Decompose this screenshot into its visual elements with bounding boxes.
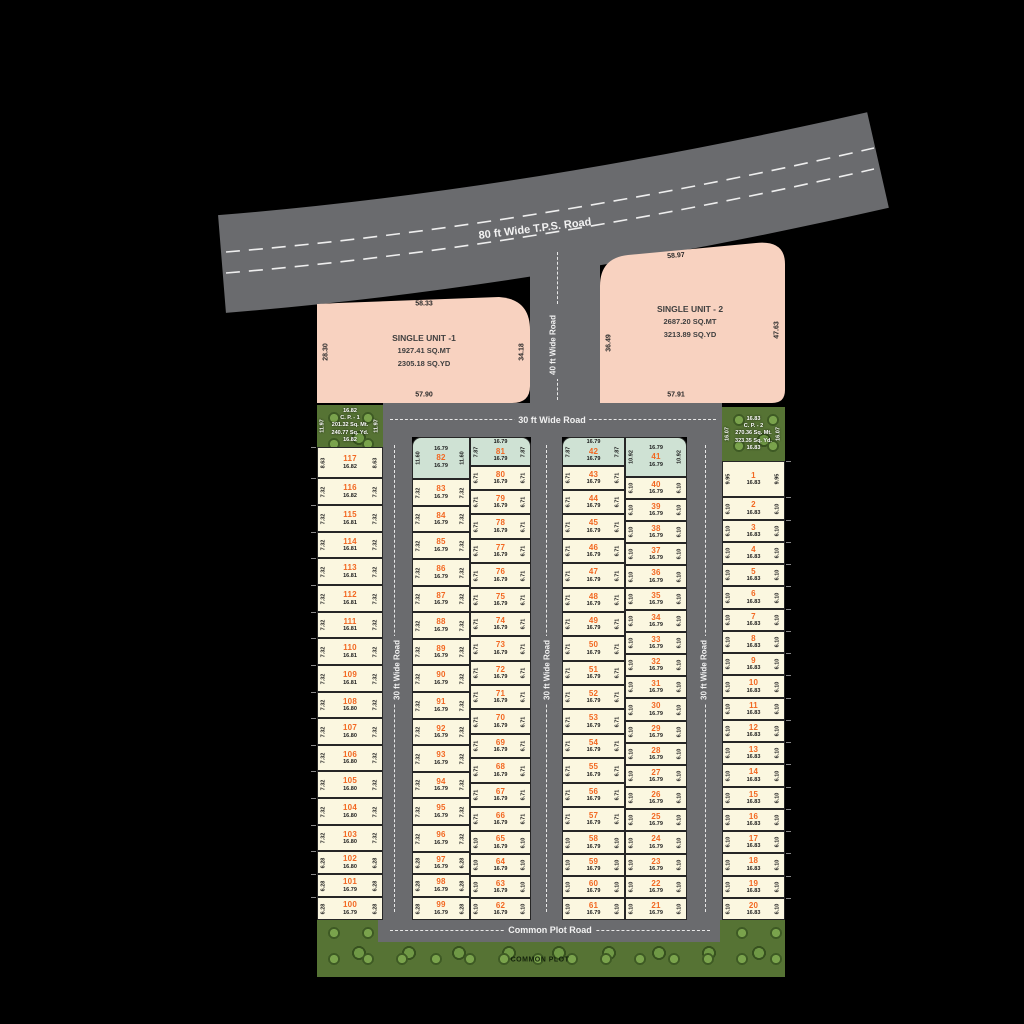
plot-34-number: 34 — [651, 614, 660, 622]
plot-88: 8816.797.327.32 — [412, 612, 470, 639]
plot-21-side-dim-left: 6.10 — [629, 904, 635, 915]
dimension-tick — [786, 698, 791, 699]
plot-77-side-dim-left: 6.71 — [474, 546, 480, 557]
plot-116-side-dim-right: 7.32 — [373, 486, 379, 497]
plot-54-side-dim-left: 6.71 — [566, 741, 572, 752]
plot-76-width-dim: 16.79 — [494, 578, 508, 584]
plot-26-number: 26 — [651, 791, 660, 799]
plot-24-side-dim-right: 6.10 — [677, 837, 683, 848]
plot-73-side-dim-right: 6.71 — [521, 643, 527, 654]
plot-56-side-dim-right: 6.71 — [615, 790, 621, 801]
plot-100: 10016.796.286.28 — [317, 897, 383, 920]
common-plot-road-label: Common Plot Road — [504, 924, 596, 936]
plot-102-side-dim-left: 6.28 — [321, 857, 327, 868]
plot-65-side-dim-left: 6.10 — [474, 837, 480, 848]
dimension-tick — [786, 461, 791, 462]
plot-67-number: 67 — [496, 788, 505, 796]
cp2-area-mt: 270.36 Sq. Mt. — [735, 430, 771, 437]
dimension-tick — [311, 612, 316, 613]
plot-46: 4616.796.716.71 — [562, 539, 625, 563]
plot-64-number: 64 — [496, 858, 505, 866]
plot-110-width-dim: 16.81 — [343, 654, 357, 660]
plot-114-width-dim: 16.81 — [343, 547, 357, 553]
plot-61-side-dim-right: 6.10 — [615, 904, 621, 915]
plot-1-side-dim-right: 9.95 — [775, 474, 781, 485]
plot-109-number: 109 — [343, 671, 357, 679]
plot-53-side-dim-left: 6.71 — [566, 716, 572, 727]
plot-109-side-dim-right: 7.32 — [373, 673, 379, 684]
plot-44-width-dim: 16.79 — [587, 504, 601, 510]
plot-56-number: 56 — [589, 788, 598, 796]
plot-108-number: 108 — [343, 698, 357, 706]
dimension-tick — [786, 631, 791, 632]
plot-13-number: 13 — [749, 746, 758, 754]
plot-99-side-dim-left: 6.28 — [416, 903, 422, 914]
plot-95-number: 95 — [436, 804, 445, 812]
plot-52-width-dim: 16.79 — [587, 699, 601, 705]
plot-52-number: 52 — [589, 690, 598, 698]
plot-47: 4716.796.716.71 — [562, 563, 625, 588]
plot-76-number: 76 — [496, 568, 505, 576]
single-unit-2-dim-right: 47.63 — [774, 321, 781, 339]
plot-61: 6116.796.106.10 — [562, 898, 625, 920]
plot-97-side-dim-right: 6.28 — [460, 858, 466, 869]
plot-65: 6516.796.106.10 — [470, 831, 531, 854]
plot-9: 916.836.106.10 — [722, 653, 785, 675]
plot-10: 1016.836.106.10 — [722, 675, 785, 698]
plot-79-number: 79 — [496, 495, 505, 503]
plot-7-side-dim-right: 6.10 — [775, 615, 781, 626]
plot-61-width-dim: 16.79 — [587, 911, 601, 917]
plot-53-width-dim: 16.79 — [587, 724, 601, 730]
plot-113-number: 113 — [343, 564, 357, 572]
plot-81: 16.798116.797.877.87 — [470, 437, 531, 466]
plot-74-side-dim-left: 6.71 — [474, 619, 480, 630]
plot-26-side-dim-left: 6.10 — [629, 793, 635, 804]
plot-75-side-dim-left: 6.71 — [474, 595, 480, 606]
plot-111-side-dim-left: 7.32 — [321, 620, 327, 631]
plot-78-number: 78 — [496, 519, 505, 527]
plot-100-side-dim-left: 6.28 — [321, 903, 327, 914]
plot-45-number: 45 — [589, 519, 598, 527]
plot-105-side-dim-left: 7.32 — [321, 779, 327, 790]
plot-5-side-dim-right: 6.10 — [775, 570, 781, 581]
plot-113-side-dim-right: 7.32 — [373, 566, 379, 577]
plot-70: 7016.796.716.71 — [470, 709, 531, 734]
plot-87-width-dim: 16.79 — [434, 601, 448, 607]
plot-4-number: 4 — [751, 546, 756, 554]
plot-72-side-dim-left: 6.71 — [474, 668, 480, 679]
plot-21: 2116.796.106.10 — [625, 898, 687, 920]
plot-31-number: 31 — [651, 680, 660, 688]
plot-60-width-dim: 16.79 — [587, 889, 601, 895]
plot-72-width-dim: 16.79 — [494, 675, 508, 681]
dimension-tick — [311, 692, 316, 693]
plot-36-number: 36 — [651, 569, 660, 577]
plot-93-side-dim-left: 7.32 — [416, 753, 422, 764]
plot-39: 3916.796.106.10 — [625, 499, 687, 521]
plot-73-side-dim-left: 6.71 — [474, 643, 480, 654]
plot-53: 5316.796.716.71 — [562, 709, 625, 734]
plot-82: 16.798216.7911.6011.60 — [412, 437, 470, 479]
plot-11: 1116.836.106.10 — [722, 698, 785, 720]
plot-69-side-dim-left: 6.71 — [474, 741, 480, 752]
plot-91-side-dim-right: 7.32 — [460, 700, 466, 711]
plot-19-number: 19 — [749, 880, 758, 888]
plot-90-number: 90 — [436, 671, 445, 679]
plot-17: 1716.836.106.10 — [722, 831, 785, 853]
plot-114-number: 114 — [343, 538, 357, 546]
plot-30-side-dim-left: 6.10 — [629, 704, 635, 715]
plot-111-width-dim: 16.81 — [343, 627, 357, 633]
plot-42-number: 42 — [589, 448, 598, 456]
dimension-tick — [786, 809, 791, 810]
plot-68-number: 68 — [496, 763, 505, 771]
plot-55-side-dim-right: 6.71 — [615, 765, 621, 776]
plot-41-side-dim-left: 10.92 — [629, 450, 635, 464]
plot-76-side-dim-left: 6.71 — [474, 570, 480, 581]
plot-17-side-dim-left: 6.10 — [726, 837, 732, 848]
plot-55-number: 55 — [589, 763, 598, 771]
plot-46-side-dim-right: 6.71 — [615, 546, 621, 557]
plot-115: 11516.817.327.32 — [317, 505, 383, 532]
plot-81-top-dim: 16.79 — [494, 440, 508, 446]
plot-116-side-dim-left: 7.32 — [321, 486, 327, 497]
plot-42-side-dim-right: 7.87 — [615, 446, 621, 457]
plot-117-side-dim-right: 8.63 — [373, 457, 379, 468]
plot-16-width-dim: 16.83 — [747, 822, 761, 828]
plot-42-side-dim-left: 7.87 — [566, 446, 572, 457]
plot-92-width-dim: 16.79 — [434, 734, 448, 740]
plot-18-width-dim: 16.83 — [747, 867, 761, 873]
plot-15-side-dim-left: 6.10 — [726, 793, 732, 804]
plot-107: 10716.807.327.32 — [317, 718, 383, 745]
plot-67-side-dim-left: 6.71 — [474, 790, 480, 801]
plot-42-top-dim: 16.79 — [587, 440, 601, 446]
plot-107-side-dim-right: 7.32 — [373, 726, 379, 737]
plot-43-width-dim: 16.79 — [587, 480, 601, 486]
plot-68-side-dim-left: 6.71 — [474, 765, 480, 776]
plot-96: 9616.797.327.32 — [412, 825, 470, 852]
plot-58-side-dim-left: 6.10 — [566, 837, 572, 848]
plot-61-side-dim-left: 6.10 — [566, 904, 572, 915]
plot-28-number: 28 — [651, 747, 660, 755]
plot-103-side-dim-right: 7.32 — [373, 833, 379, 844]
plot-50-number: 50 — [589, 641, 598, 649]
plot-10-side-dim-right: 6.10 — [775, 681, 781, 692]
plot-80-side-dim-right: 6.71 — [521, 473, 527, 484]
plot-23-side-dim-left: 6.10 — [629, 860, 635, 871]
plot-45-side-dim-right: 6.71 — [615, 521, 621, 532]
plot-29-side-dim-left: 6.10 — [629, 727, 635, 738]
plot-63: 6316.796.106.10 — [470, 876, 531, 898]
plot-43-number: 43 — [589, 471, 598, 479]
plot-49-side-dim-right: 6.71 — [615, 619, 621, 630]
plot-85-side-dim-right: 7.32 — [460, 540, 466, 551]
plot-105-width-dim: 16.80 — [343, 787, 357, 793]
plot-20-number: 20 — [749, 902, 758, 910]
plot-23: 2316.796.106.10 — [625, 854, 687, 876]
plot-32-number: 32 — [651, 658, 660, 666]
plot-73-number: 73 — [496, 641, 505, 649]
plot-38: 3816.796.106.10 — [625, 521, 687, 543]
plot-4-width-dim: 16.83 — [747, 555, 761, 561]
plot-69-number: 69 — [496, 739, 505, 747]
plot-87: 8716.797.327.32 — [412, 586, 470, 612]
street-road-2-label: 30 ft Wide Road — [542, 636, 553, 704]
plot-10-number: 10 — [749, 679, 758, 687]
plot-60-side-dim-left: 6.10 — [566, 882, 572, 893]
plot-6: 616.836.106.10 — [722, 586, 785, 609]
plot-106: 10616.807.327.32 — [317, 745, 383, 771]
plot-26: 2616.796.106.10 — [625, 787, 687, 809]
plot-87-number: 87 — [436, 592, 445, 600]
plot-27-side-dim-left: 6.10 — [629, 771, 635, 782]
plot-88-number: 88 — [436, 618, 445, 626]
plot-63-width-dim: 16.79 — [494, 889, 508, 895]
plot-73: 7316.796.716.71 — [470, 636, 531, 661]
plot-114: 11416.817.327.32 — [317, 532, 383, 558]
cp2-dim-bottom: 16.83 — [747, 445, 761, 452]
plot-7-width-dim: 16.83 — [747, 622, 761, 628]
plot-75: 7516.796.716.71 — [470, 588, 531, 612]
plot-60: 6016.796.106.10 — [562, 876, 625, 898]
plot-12-side-dim-right: 6.10 — [775, 726, 781, 737]
plot-114-side-dim-left: 7.32 — [321, 540, 327, 551]
plot-51-side-dim-right: 6.71 — [615, 668, 621, 679]
plot-64-side-dim-left: 6.10 — [474, 860, 480, 871]
plot-37: 3716.796.106.10 — [625, 543, 687, 565]
plot-3-width-dim: 16.83 — [747, 533, 761, 539]
single-unit-1-area-yd: 2305.18 SQ.YD — [392, 358, 456, 371]
plot-26-width-dim: 16.79 — [649, 800, 663, 806]
plot-93-side-dim-right: 7.32 — [460, 753, 466, 764]
plot-107-width-dim: 16.80 — [343, 734, 357, 740]
plot-52-side-dim-left: 6.71 — [566, 692, 572, 703]
plot-13-side-dim-right: 6.10 — [775, 748, 781, 759]
plot-99: 9916.796.286.28 — [412, 897, 470, 920]
plot-9-number: 9 — [751, 657, 756, 665]
plot-17-side-dim-right: 6.10 — [775, 837, 781, 848]
plot-90-width-dim: 16.79 — [434, 681, 448, 687]
plot-16-side-dim-left: 6.10 — [726, 815, 732, 826]
plot-31-side-dim-right: 6.10 — [677, 682, 683, 693]
plot-98-side-dim-right: 6.28 — [460, 880, 466, 891]
dimension-tick — [786, 831, 791, 832]
plot-53-number: 53 — [589, 714, 598, 722]
plot-30-number: 30 — [651, 702, 660, 710]
forty-road-dash-top — [557, 252, 558, 304]
plot-108: 10816.807.327.32 — [317, 692, 383, 718]
plot-47-side-dim-left: 6.71 — [566, 570, 572, 581]
plot-37-number: 37 — [651, 547, 660, 555]
cross-road-label: 30 ft Wide Road — [514, 414, 589, 426]
plot-1: 116.839.959.95 — [722, 461, 785, 497]
plot-94-side-dim-right: 7.32 — [460, 780, 466, 791]
plot-98-width-dim: 16.79 — [434, 888, 448, 894]
plot-106-side-dim-right: 7.32 — [373, 753, 379, 764]
plot-74-side-dim-right: 6.71 — [521, 619, 527, 630]
plot-67-side-dim-right: 6.71 — [521, 790, 527, 801]
plot-94-width-dim: 16.79 — [434, 787, 448, 793]
plot-66-side-dim-right: 6.71 — [521, 814, 527, 825]
plot-98: 9816.796.286.28 — [412, 874, 470, 897]
plot-91-number: 91 — [436, 698, 445, 706]
plot-28-side-dim-right: 6.10 — [677, 749, 683, 760]
plot-35-side-dim-left: 6.10 — [629, 594, 635, 605]
dimension-tick — [311, 532, 316, 533]
plot-111: 11116.817.327.32 — [317, 612, 383, 638]
plot-4: 416.836.106.10 — [722, 542, 785, 564]
plot-64: 6416.796.106.10 — [470, 854, 531, 876]
plot-116: 11616.827.327.32 — [317, 478, 383, 505]
plot-86-number: 86 — [436, 565, 445, 573]
plot-69-width-dim: 16.79 — [494, 748, 508, 754]
plot-85-width-dim: 16.79 — [434, 548, 448, 554]
plot-68: 6816.796.716.71 — [470, 758, 531, 783]
plot-39-side-dim-left: 6.10 — [629, 505, 635, 516]
plot-83: 8316.797.327.32 — [412, 479, 470, 506]
plot-84: 8416.797.327.32 — [412, 506, 470, 532]
plot-7: 716.836.106.10 — [722, 609, 785, 631]
plot-76-side-dim-right: 6.71 — [521, 570, 527, 581]
plot-104-side-dim-left: 7.32 — [321, 806, 327, 817]
plot-86: 8616.797.327.32 — [412, 559, 470, 586]
plot-79-width-dim: 16.79 — [494, 504, 508, 510]
plot-92-side-dim-right: 7.32 — [460, 727, 466, 738]
plot-97-width-dim: 16.79 — [434, 865, 448, 871]
dimension-tick — [786, 787, 791, 788]
plot-23-number: 23 — [651, 858, 660, 866]
plot-109-width-dim: 16.81 — [343, 681, 357, 687]
plot-112-number: 112 — [343, 591, 357, 599]
plot-49-number: 49 — [589, 617, 598, 625]
plot-104-side-dim-right: 7.32 — [373, 806, 379, 817]
plot-5: 516.836.106.10 — [722, 564, 785, 586]
plot-106-width-dim: 16.80 — [343, 760, 357, 766]
plot-70-width-dim: 16.79 — [494, 724, 508, 730]
plot-89-side-dim-right: 7.32 — [460, 647, 466, 658]
dimension-tick — [311, 585, 316, 586]
plot-88-side-dim-left: 7.32 — [416, 620, 422, 631]
plot-65-width-dim: 16.79 — [494, 845, 508, 851]
plot-28-width-dim: 16.79 — [649, 756, 663, 762]
plot-54-width-dim: 16.79 — [587, 748, 601, 754]
plot-117-side-dim-left: 8.63 — [321, 457, 327, 468]
plot-4-side-dim-left: 6.10 — [726, 548, 732, 559]
plot-96-width-dim: 16.79 — [434, 841, 448, 847]
plot-2-number: 2 — [751, 501, 756, 509]
plot-45-width-dim: 16.79 — [587, 529, 601, 535]
plot-27: 2716.796.106.10 — [625, 765, 687, 787]
plot-102: 10216.806.286.28 — [317, 851, 383, 874]
single-unit-1-text: SINGLE UNIT -1 1927.41 SQ.MT 2305.18 SQ.… — [392, 331, 456, 371]
plot-99-width-dim: 16.79 — [434, 911, 448, 917]
plot-12-number: 12 — [749, 724, 758, 732]
plot-9-width-dim: 16.83 — [747, 666, 761, 672]
plot-95-side-dim-left: 7.32 — [416, 806, 422, 817]
plot-1-width-dim: 16.83 — [747, 481, 761, 487]
plot-31: 3116.796.106.10 — [625, 676, 687, 698]
street-road-1-label: 30 ft Wide Road — [392, 636, 403, 704]
plot-44-side-dim-left: 6.71 — [566, 497, 572, 508]
plot-57-side-dim-left: 6.71 — [566, 814, 572, 825]
plot-25-side-dim-left: 6.10 — [629, 815, 635, 826]
plot-75-number: 75 — [496, 593, 505, 601]
plot-45: 4516.796.716.71 — [562, 514, 625, 539]
plot-7-number: 7 — [751, 613, 756, 621]
plot-77-side-dim-right: 6.71 — [521, 546, 527, 557]
plot-77-width-dim: 16.79 — [494, 553, 508, 559]
plot-5-width-dim: 16.83 — [747, 577, 761, 583]
plot-23-width-dim: 16.79 — [649, 867, 663, 873]
plot-96-side-dim-right: 7.32 — [460, 833, 466, 844]
plot-49-side-dim-left: 6.71 — [566, 619, 572, 630]
plot-38-width-dim: 16.79 — [649, 534, 663, 540]
plot-97-side-dim-left: 6.28 — [416, 858, 422, 869]
plot-57-number: 57 — [589, 812, 598, 820]
dimension-tick — [786, 520, 791, 521]
plot-36-side-dim-right: 6.10 — [677, 571, 683, 582]
single-unit-1-area-mt: 1927.41 SQ.MT — [392, 345, 456, 358]
plot-84-side-dim-right: 7.32 — [460, 514, 466, 525]
plot-105: 10516.807.327.32 — [317, 771, 383, 798]
plot-107-side-dim-left: 7.32 — [321, 726, 327, 737]
plot-12-width-dim: 16.83 — [747, 733, 761, 739]
plot-51-width-dim: 16.79 — [587, 675, 601, 681]
plot-108-side-dim-left: 7.32 — [321, 700, 327, 711]
plot-88-side-dim-right: 7.32 — [460, 620, 466, 631]
plot-25-side-dim-right: 6.10 — [677, 815, 683, 826]
plot-116-width-dim: 16.82 — [343, 494, 357, 500]
plot-70-number: 70 — [496, 714, 505, 722]
plot-15-side-dim-right: 6.10 — [775, 793, 781, 804]
plot-72: 7216.796.716.71 — [470, 661, 531, 685]
plot-74-number: 74 — [496, 617, 505, 625]
dimension-tick — [786, 542, 791, 543]
plot-100-number: 100 — [343, 901, 357, 909]
plot-11-side-dim-left: 6.10 — [726, 704, 732, 715]
plot-55: 5516.796.716.71 — [562, 758, 625, 783]
plot-25: 2516.796.106.10 — [625, 809, 687, 831]
plot-42: 16.794216.797.877.87 — [562, 437, 625, 466]
dimension-tick — [311, 874, 316, 875]
plot-40-number: 40 — [651, 481, 660, 489]
plot-87-side-dim-left: 7.32 — [416, 594, 422, 605]
plot-79-side-dim-right: 6.71 — [521, 497, 527, 508]
single-unit-1-name: SINGLE UNIT -1 — [392, 331, 456, 345]
plot-98-number: 98 — [436, 878, 445, 886]
plot-67: 6716.796.716.71 — [470, 783, 531, 807]
plot-5-number: 5 — [751, 568, 756, 576]
plot-89-side-dim-left: 7.32 — [416, 647, 422, 658]
plot-84-side-dim-left: 7.32 — [416, 514, 422, 525]
plot-59-side-dim-right: 6.10 — [615, 860, 621, 871]
plot-83-width-dim: 16.79 — [434, 495, 448, 501]
plot-83-side-dim-left: 7.32 — [416, 487, 422, 498]
plot-2-side-dim-right: 6.10 — [775, 503, 781, 514]
plot-35-number: 35 — [651, 592, 660, 600]
plot-112-side-dim-right: 7.32 — [373, 593, 379, 604]
plot-11-side-dim-right: 6.10 — [775, 704, 781, 715]
plot-6-width-dim: 16.83 — [747, 600, 761, 606]
plot-30: 3016.796.106.10 — [625, 698, 687, 721]
plot-54-number: 54 — [589, 739, 598, 747]
plot-8-side-dim-right: 6.10 — [775, 637, 781, 648]
dimension-tick — [311, 897, 316, 898]
plot-5-side-dim-left: 6.10 — [726, 570, 732, 581]
plot-18: 1816.836.106.10 — [722, 853, 785, 876]
